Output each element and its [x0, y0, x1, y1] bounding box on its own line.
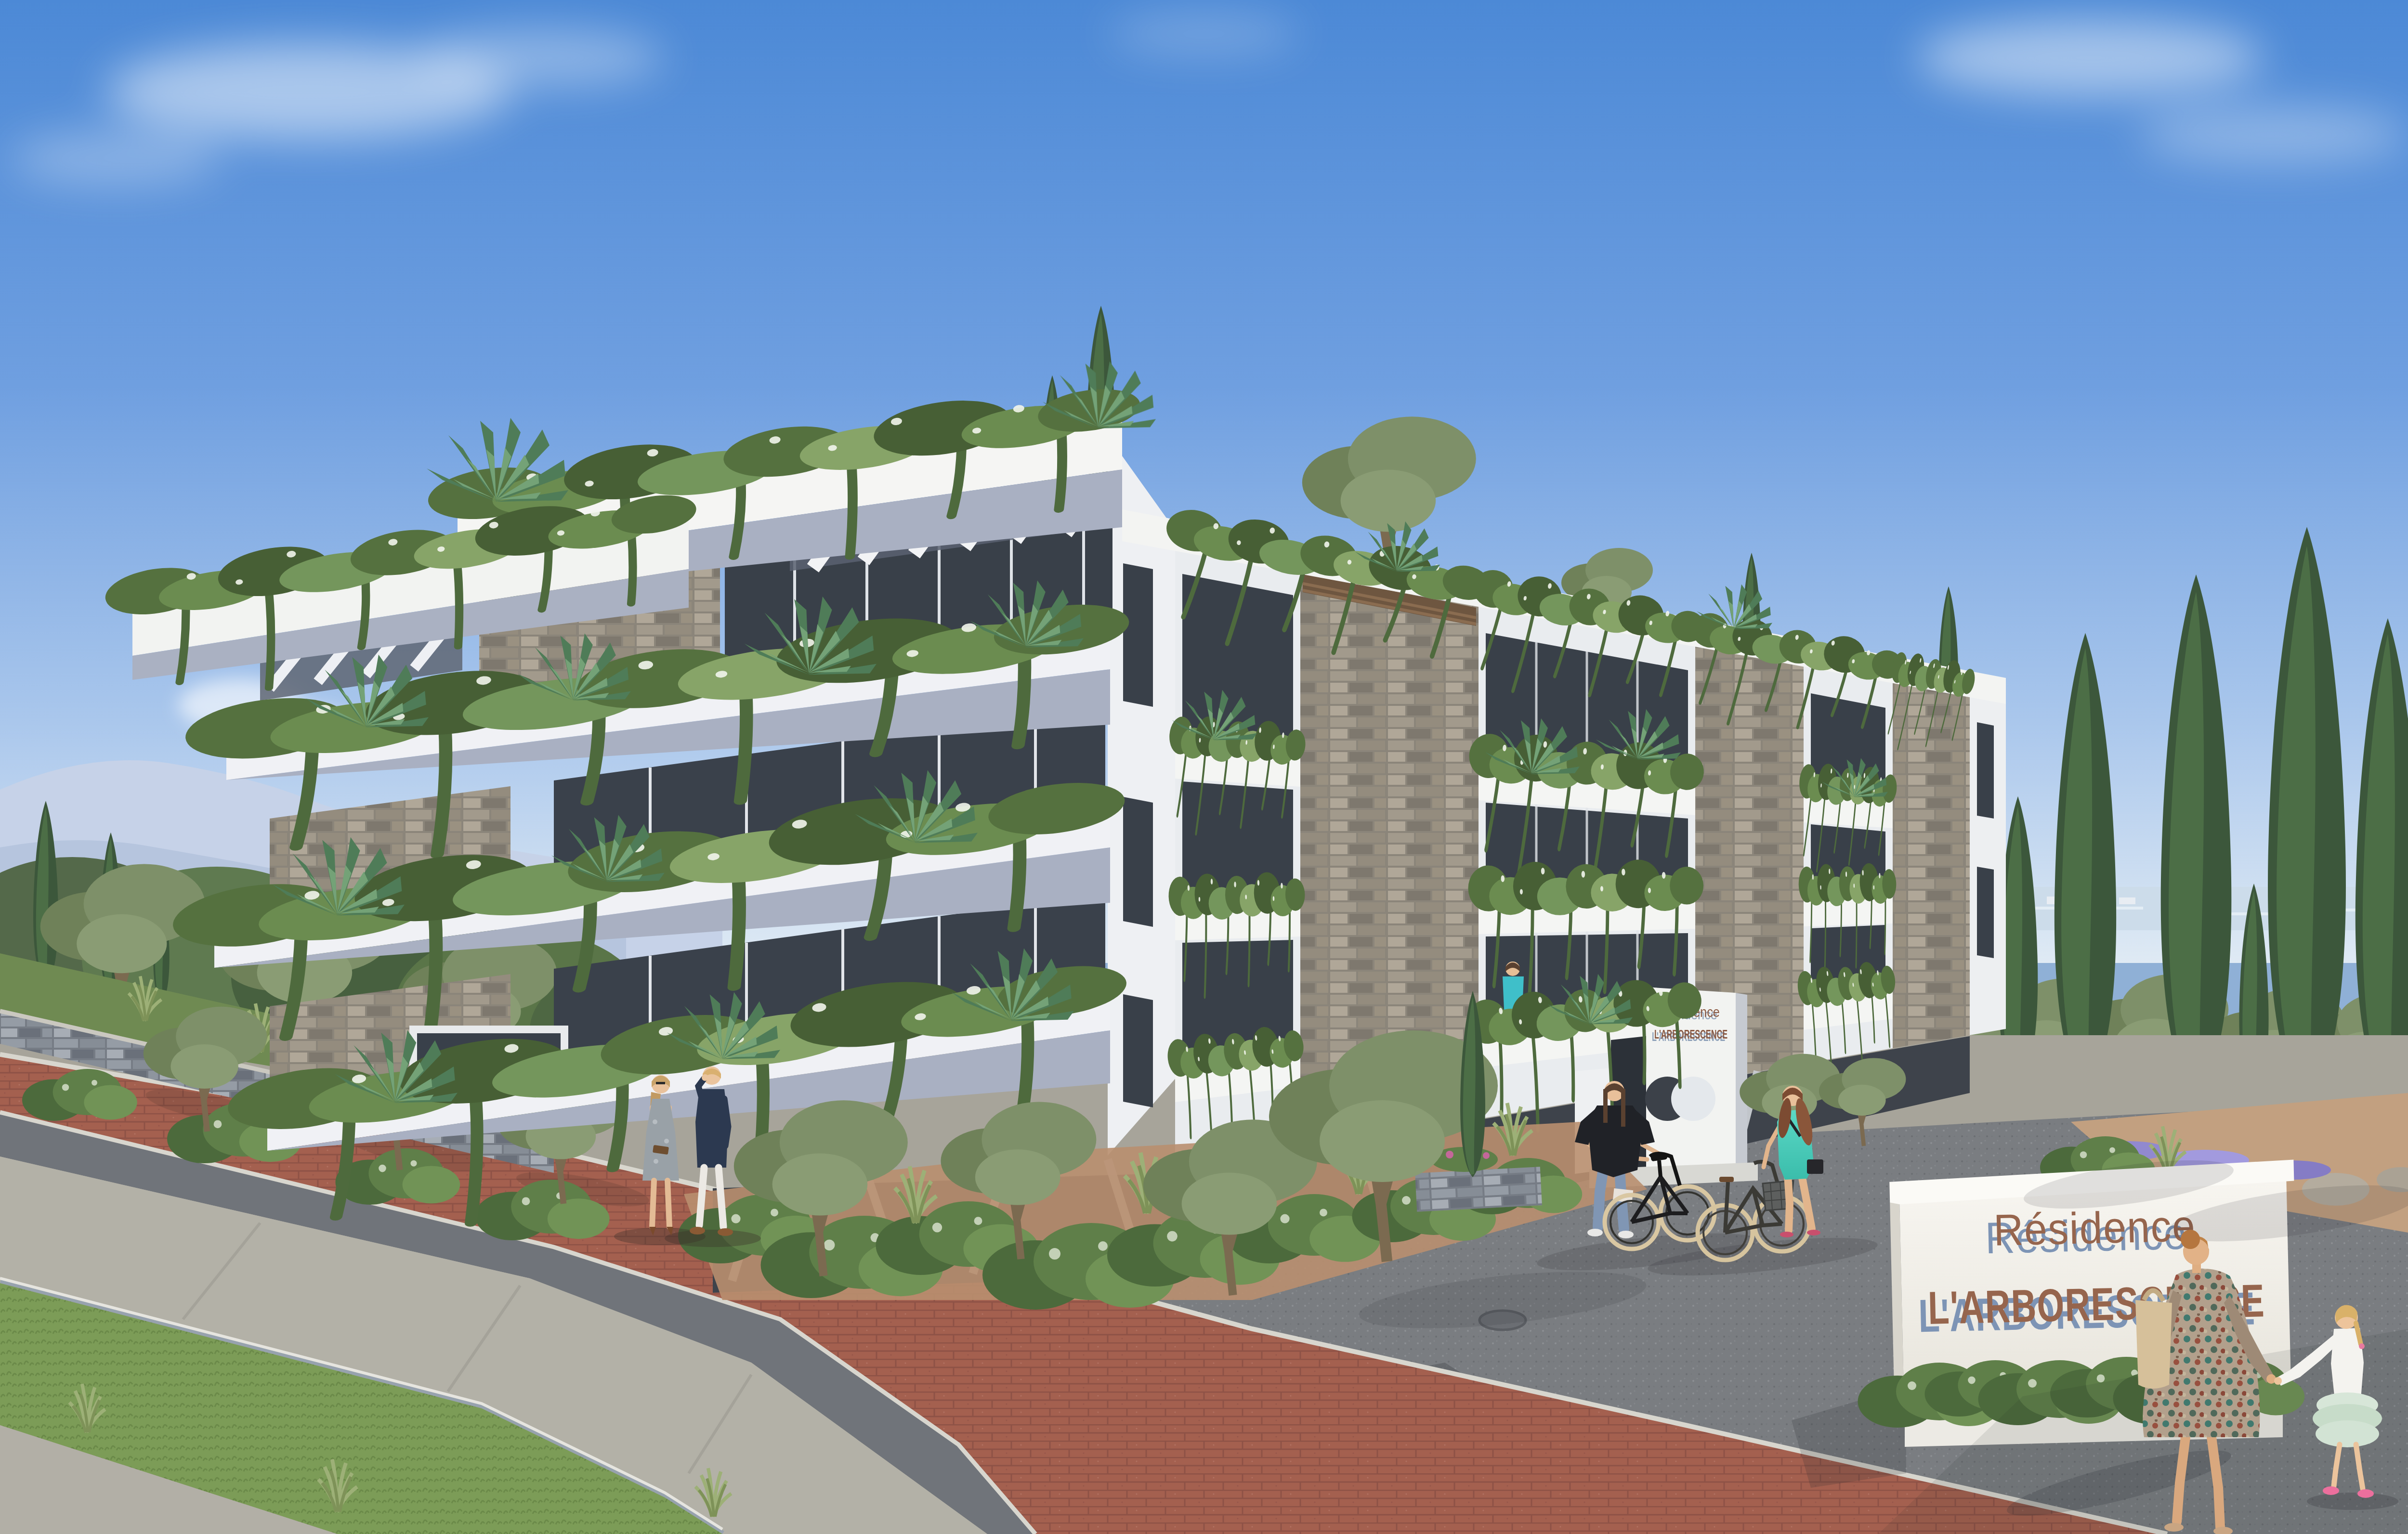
- dress-pattern: [653, 1119, 657, 1124]
- dress-pattern: [664, 1139, 669, 1144]
- small-bag: [1807, 1159, 1823, 1174]
- tote-bag: [2135, 1300, 2172, 1389]
- hair-strand: [1603, 1089, 1608, 1123]
- loafer: [718, 1228, 733, 1236]
- sneaker: [1587, 1229, 1603, 1236]
- stone-planter: [1415, 1167, 1542, 1211]
- hair-strand: [1621, 1089, 1625, 1127]
- shadow: [665, 1230, 761, 1247]
- monument-sign-line1: Résidence: [1993, 1201, 2196, 1255]
- hair-bow: [2359, 1343, 2365, 1349]
- render-canvas: Résidence Résidence L'ARBORESCENCE L'ARB…: [0, 0, 2408, 1534]
- pink-sneaker: [2357, 1489, 2374, 1498]
- hair-bun: [2181, 1230, 2200, 1249]
- hand: [702, 1074, 708, 1081]
- sunglasses: [656, 1082, 665, 1084]
- end-window: [1977, 722, 1994, 819]
- hand: [2274, 1377, 2282, 1385]
- flip-flop: [1780, 1232, 1793, 1237]
- dress-pattern: [654, 1159, 658, 1164]
- entrance-circle-light: [1671, 1077, 1715, 1121]
- end-window: [1977, 867, 1994, 958]
- architectural-rendering-scene: Résidence Résidence L'ARBORESCENCE L'ARB…: [0, 0, 2408, 1534]
- corner-windows: [1123, 563, 1153, 1107]
- saddle: [1719, 1177, 1734, 1182]
- arm: [724, 1099, 728, 1146]
- tutu-layer: [2316, 1420, 2379, 1447]
- stone-pillar: [1893, 670, 1970, 1048]
- pink-sneaker: [2323, 1486, 2339, 1495]
- shoe: [2164, 1523, 2184, 1532]
- shadow: [2307, 1493, 2398, 1510]
- sneaker: [1618, 1231, 1634, 1238]
- loafer: [690, 1227, 705, 1235]
- entrance-sign-line2: L'ARBORESCENCE: [1654, 1027, 1727, 1041]
- flip-flop: [1807, 1230, 1820, 1235]
